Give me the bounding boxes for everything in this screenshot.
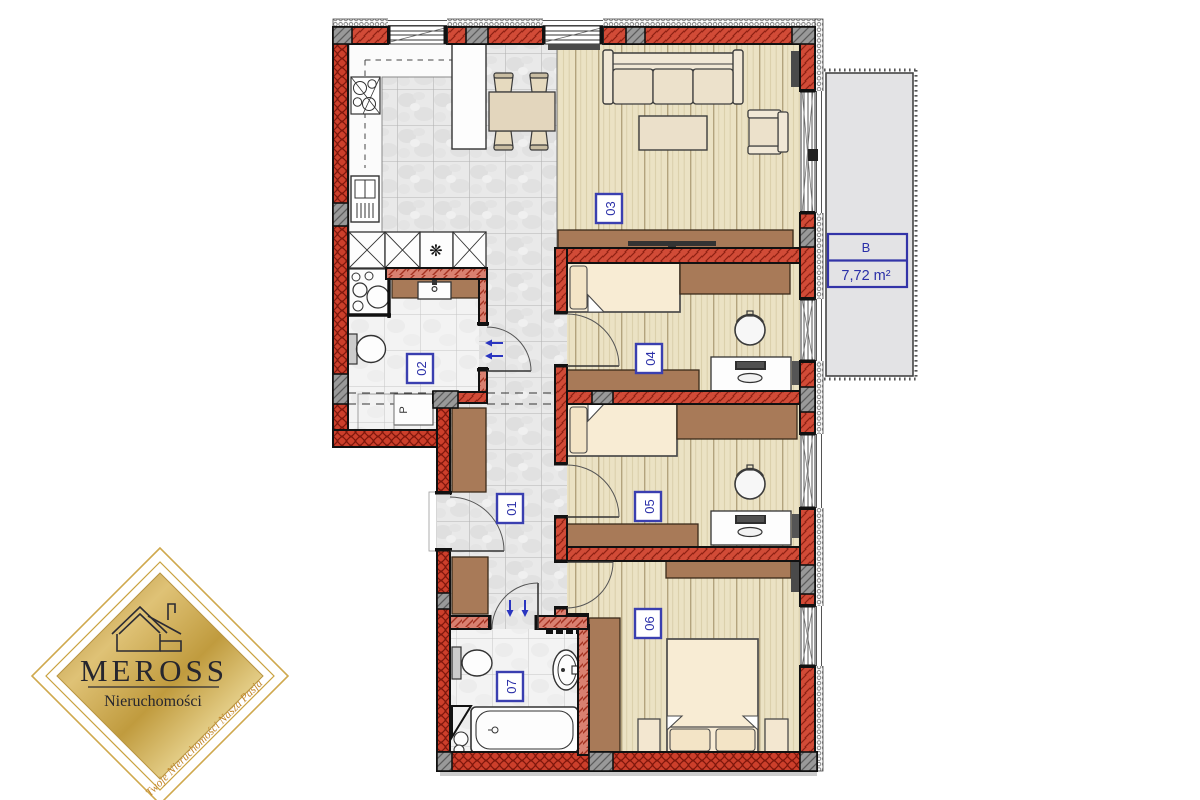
svg-text:02: 02 — [414, 361, 429, 375]
svg-text:05: 05 — [642, 499, 657, 513]
svg-text:Nieruchomości: Nieruchomości — [104, 693, 202, 710]
svg-text:P: P — [398, 406, 410, 413]
svg-text:06: 06 — [642, 616, 657, 630]
svg-text:07: 07 — [504, 679, 519, 693]
svg-text:01: 01 — [504, 501, 519, 515]
svg-text:B: B — [862, 240, 871, 255]
svg-text:❋: ❋ — [429, 243, 442, 260]
svg-text:04: 04 — [643, 351, 658, 365]
svg-text:7,72 m²: 7,72 m² — [841, 268, 890, 284]
svg-text:MEROSS: MEROSS — [80, 653, 228, 688]
svg-text:03: 03 — [603, 201, 618, 215]
